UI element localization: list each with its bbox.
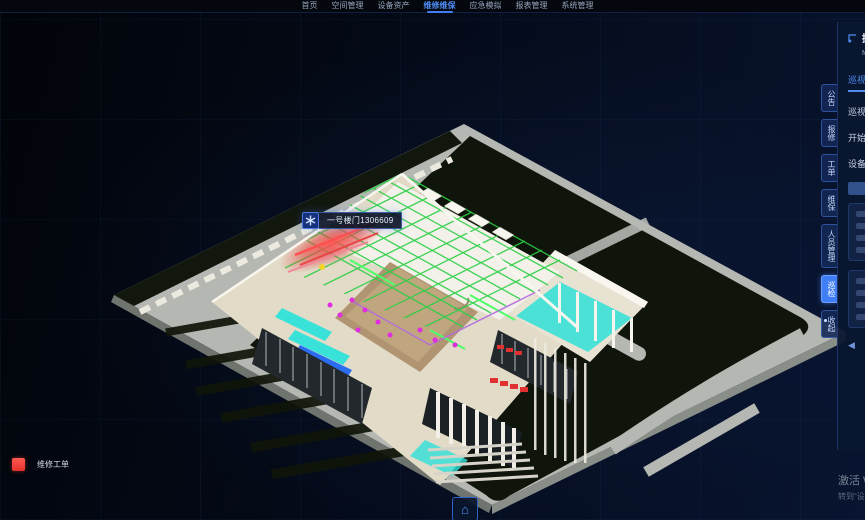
work-order-legend: 维修工单 xyxy=(12,458,69,471)
snowflake-icon xyxy=(302,212,319,229)
tab-personnel[interactable]: 人员管理 xyxy=(821,224,837,268)
collapse-arrow-icon[interactable]: ◀ xyxy=(848,340,865,351)
top-nav: 首页 空间管理 设备资产 维修维保 应急模拟 报表管理 系统管理 xyxy=(0,0,865,13)
panel-active-subtab[interactable]: 巡视 xyxy=(848,73,865,92)
3d-viewport[interactable] xyxy=(0,0,865,520)
reset-view-button[interactable]: ⌂ xyxy=(452,497,478,520)
tab-collapse[interactable]: 收起 xyxy=(821,310,837,338)
menu-row-start-time[interactable]: 开始时间 xyxy=(848,131,865,144)
legend-label: 维修工单 xyxy=(37,459,69,470)
tab-inspection[interactable]: 巡检 xyxy=(821,275,837,303)
activation-watermark: 激活 W 转到“设 xyxy=(838,472,865,502)
watermark-line1: 激活 W xyxy=(838,472,865,488)
nav-item-reports[interactable]: 报表管理 xyxy=(516,0,548,12)
right-panel: 公告 报修 工单 维保 人员管理 巡检 收起 操作 Ma 巡视 巡视路线 开始 xyxy=(820,22,865,450)
device-tooltip: 一号楼门1306609 xyxy=(302,212,402,229)
alarm-dot-yellow xyxy=(319,264,325,270)
menu-row-ledger[interactable]: 设备台账 xyxy=(848,157,865,170)
nav-item-emergency[interactable]: 应急模拟 xyxy=(470,0,502,12)
nav-item-home[interactable]: 首页 xyxy=(302,0,318,12)
side-tab-strip: 公告 报修 工单 维保 人员管理 巡检 收起 xyxy=(820,22,837,450)
home-icon: ⌂ xyxy=(461,503,469,516)
tab-work-orders[interactable]: 工单 xyxy=(821,154,837,182)
nav-item-assets[interactable]: 设备资产 xyxy=(378,0,410,12)
red-square-icon xyxy=(12,458,25,471)
list-item[interactable] xyxy=(848,203,865,261)
nav-item-space[interactable]: 空间管理 xyxy=(332,0,364,12)
selected-list-row[interactable] xyxy=(848,182,865,195)
tab-repair-report[interactable]: 报修 xyxy=(821,119,837,147)
nav-item-maintenance[interactable]: 维修维保 xyxy=(424,0,456,12)
app-window: 首页 空间管理 设备资产 维修维保 应急模拟 报表管理 系统管理 xyxy=(0,0,865,520)
menu-row-route[interactable]: 巡视路线 xyxy=(848,105,865,118)
tab-maintenance[interactable]: 维保 xyxy=(821,189,837,217)
nav-item-system[interactable]: 系统管理 xyxy=(562,0,594,12)
watermark-line2: 转到“设 xyxy=(838,491,865,502)
list-item[interactable] xyxy=(848,270,865,328)
header-bracket-icon xyxy=(848,33,858,43)
panel-header: 操作 xyxy=(848,30,865,45)
tab-announcements[interactable]: 公告 xyxy=(821,84,837,112)
panel-content-clip: 操作 Ma 巡视 巡视路线 开始时间 设备台账 ◀ xyxy=(837,22,865,450)
device-tooltip-text: 一号楼门1306609 xyxy=(319,212,402,229)
